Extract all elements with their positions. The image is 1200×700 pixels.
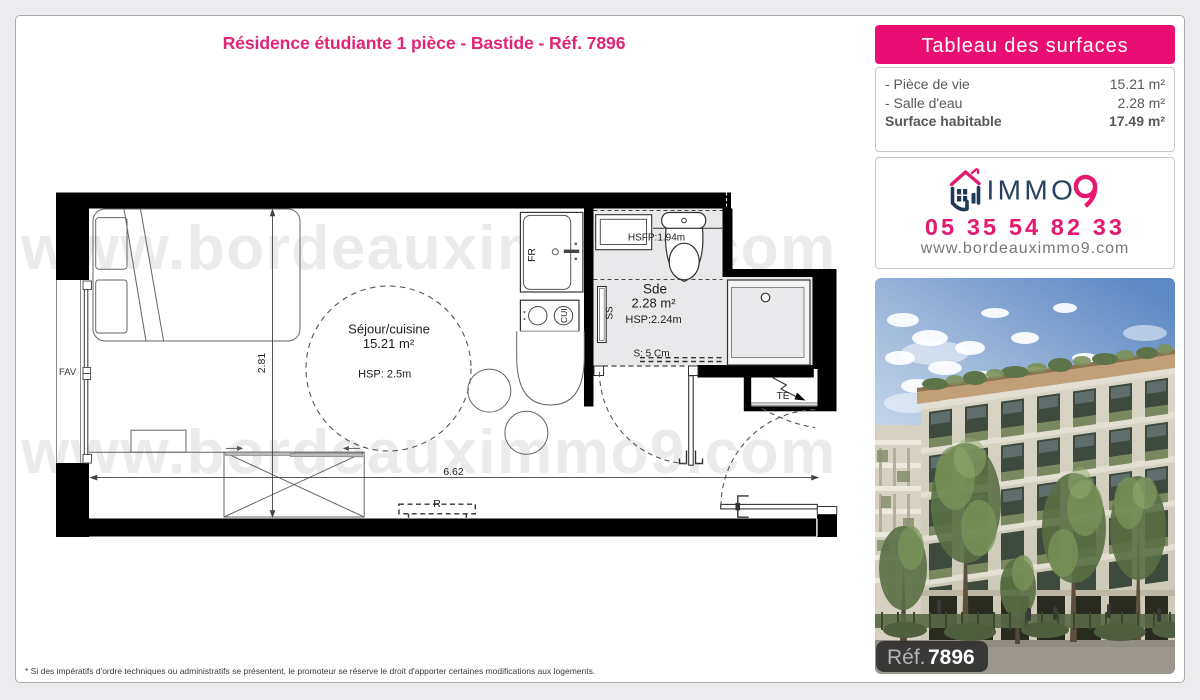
svg-text:Sde: Sde xyxy=(643,282,667,297)
svg-text:SS: SS xyxy=(605,306,616,320)
svg-text:HSP:2.24m: HSP:2.24m xyxy=(625,314,681,326)
svg-text:HSFP:1.94m: HSFP:1.94m xyxy=(628,233,685,244)
svg-text:2.28 m²: 2.28 m² xyxy=(631,296,676,311)
svg-text:2.81: 2.81 xyxy=(256,353,268,374)
svg-text:TE: TE xyxy=(777,391,790,402)
svg-text:FR: FR xyxy=(526,248,538,262)
svg-text:7896: 7896 xyxy=(928,646,975,669)
svg-text:CUI: CUI xyxy=(559,308,569,323)
svg-text:Séjour/cuisine: Séjour/cuisine xyxy=(348,322,430,337)
svg-text:R: R xyxy=(433,498,441,510)
svg-text:FAV: FAV xyxy=(59,367,77,378)
svg-text:Réf.: Réf. xyxy=(887,646,926,669)
svg-text:HSP: 2.5m: HSP: 2.5m xyxy=(358,369,411,381)
svg-text:15.21 m²: 15.21 m² xyxy=(363,336,415,351)
svg-text:IMMO: IMMO xyxy=(987,175,1077,206)
svg-text:6.62: 6.62 xyxy=(443,466,464,478)
